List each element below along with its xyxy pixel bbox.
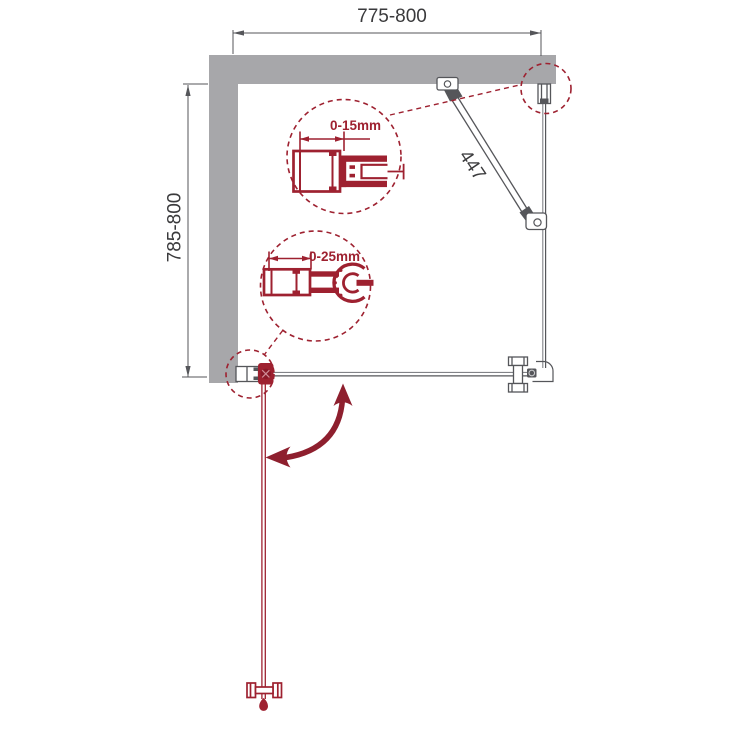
side-depth-dimension: [182, 84, 208, 377]
door-handle-open: [247, 683, 282, 698]
door-closed-position: [273, 357, 533, 392]
corner-connector: [527, 362, 553, 382]
detail-circle-hinge-profile: [261, 231, 371, 341]
top-width-dimension: [233, 30, 541, 56]
fixed-side-panel: [543, 104, 546, 368]
door-bottom-cap: [259, 698, 268, 711]
wall-profile-adjustment-label: 0-15mm: [330, 119, 381, 133]
door-pivot-hinge: [258, 363, 274, 385]
dim-arrow-bottom: [185, 366, 190, 377]
door-swing-arrow: [266, 384, 353, 468]
door-wall-profile: [236, 367, 259, 382]
left-wall: [209, 55, 238, 383]
dim-arrow-left: [233, 30, 244, 35]
detail-drawing-wall-profile: [294, 132, 405, 192]
diagram-drawing: [0, 0, 730, 730]
dim-arrow-right: [530, 30, 541, 35]
side-depth-label: 785-800: [166, 188, 185, 268]
top-wall: [209, 55, 556, 84]
dim-arrow-top: [185, 85, 190, 96]
top-width-label: 775-800: [352, 7, 432, 26]
leader-to-hinge: [265, 331, 283, 355]
installation-diagram: 775-800 785-800 447 0-15mm 0-25mm: [0, 0, 730, 730]
door-open-position: [247, 385, 282, 711]
door-handle-closed: [509, 357, 528, 392]
wall-mount-profile: [538, 84, 551, 104]
detail-circles: [226, 64, 571, 399]
hinge-profile-adjustment-label: 0-25mm: [309, 250, 360, 264]
